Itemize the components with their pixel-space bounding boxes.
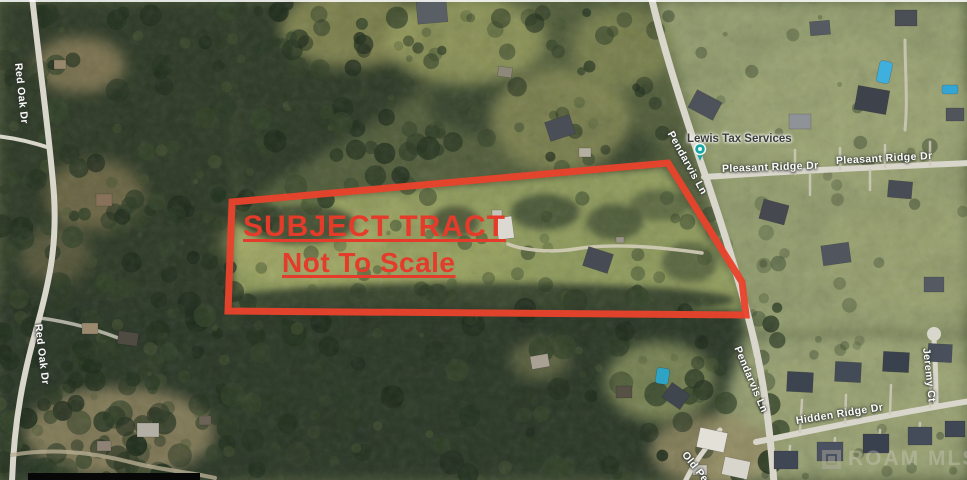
pool bbox=[655, 367, 670, 385]
top-edge-border bbox=[0, 0, 967, 2]
subject-tract-title: SUBJECT TRACT bbox=[243, 212, 506, 242]
mls-watermark-text: ROAM MLS bbox=[848, 447, 967, 471]
poi-label-lewis-tax-services: Lewis Tax Services bbox=[687, 133, 792, 145]
bottom-left-black-bar bbox=[28, 473, 200, 480]
mls-watermark: ROAM MLS bbox=[822, 447, 967, 471]
mls-logo-icon bbox=[822, 450, 841, 469]
pool bbox=[942, 85, 958, 94]
not-to-scale-note: Not To Scale bbox=[282, 249, 456, 277]
aerial-map-screenshot: Red Oak Dr Red Oak Dr Pendarvis Ln Penda… bbox=[0, 0, 967, 480]
